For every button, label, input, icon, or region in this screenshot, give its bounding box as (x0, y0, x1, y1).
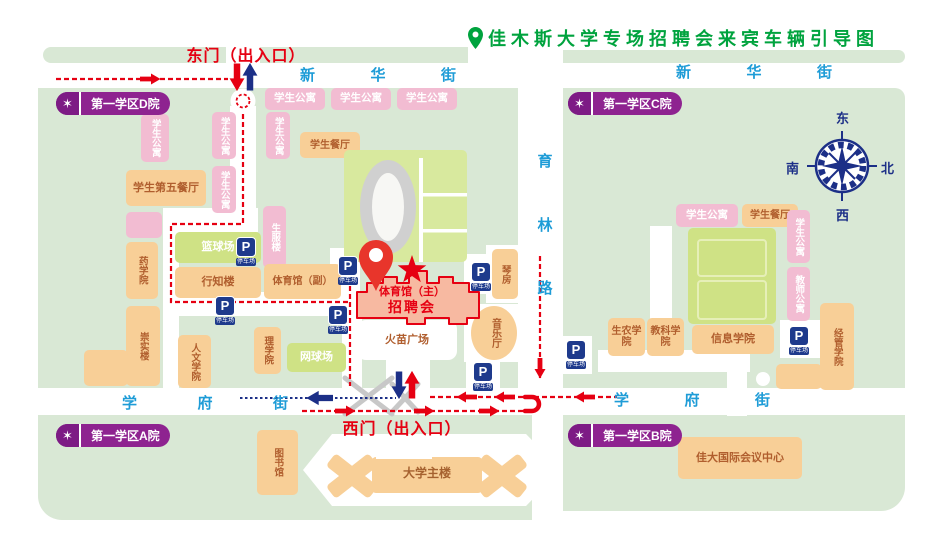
building-apt-w4: 学生公寓 (141, 114, 169, 162)
building-science-college: 理学院 (254, 327, 281, 374)
badge-district-d: ✶第一学区D院 (56, 92, 170, 115)
building-apt-e2: 学生公寓 (787, 210, 810, 263)
parking-icon: P停车场 (789, 326, 809, 355)
parking-caption: 停车场 (566, 361, 586, 369)
building-chongshi-bldg: 崇实楼 (126, 306, 160, 386)
parking-symbol: P (789, 326, 809, 346)
star-icon: ✶ (568, 424, 593, 447)
building-apt-w2: 学生公寓 (331, 88, 391, 110)
parking-symbol: P (236, 237, 256, 257)
building-shengfu-bldg: 生服楼 (263, 206, 286, 268)
parking-caption: 停车场 (215, 317, 235, 325)
building-apt-w5: 学生公寓 (212, 112, 236, 159)
street-char: 新 (676, 61, 691, 82)
badge-label: 第一学区B院 (593, 424, 682, 447)
building-apt-w7: 学生公寓 (266, 112, 290, 159)
badge-district-a: ✶第一学区A院 (56, 424, 170, 447)
parking-icon: P停车场 (473, 362, 493, 391)
parking-caption: 停车场 (328, 326, 348, 334)
street-char: 新 (300, 64, 315, 85)
building-gym-aux: 体育馆（副） (264, 264, 341, 299)
parking-icon: P停车场 (338, 256, 358, 285)
building-piano-rooms: 琴房 (492, 249, 518, 299)
building-apt-w3: 学生公寓 (397, 88, 457, 110)
parking-symbol: P (473, 362, 493, 382)
street-xuefu-east: 学府街 (614, 389, 770, 410)
campus-guidance-map: 学生公寓学生公寓学生公寓学生公寓学生公寓学生公寓学生公寓学生餐厅学生第五餐厅药学… (0, 0, 941, 533)
street-char: 育 (537, 150, 552, 171)
title-text: 佳木斯大学专场招聘会来宾车辆引导图 (488, 25, 879, 51)
building-xingzhi-bldg: 行知楼 (175, 267, 261, 298)
east-gate-label: 东门（出入口） (171, 42, 321, 66)
venue-event: 招聘会 (358, 297, 466, 317)
building-info-college: 信息学院 (692, 325, 774, 354)
building-tennis-court: 网球场 (287, 343, 346, 372)
street-char: 街 (273, 392, 288, 413)
building-shengnong-college: 生农学院 (608, 318, 645, 356)
street-char: 街 (817, 61, 832, 82)
parking-icon: P停车场 (566, 340, 586, 369)
street-char: 华 (370, 64, 385, 85)
building-pharmacy-college: 药学院 (126, 242, 158, 299)
badge-district-b: ✶第一学区B院 (568, 424, 682, 447)
parking-symbol: P (471, 262, 491, 282)
building-apt-w6: 学生公寓 (212, 166, 236, 213)
street-char: 学 (614, 389, 629, 410)
parking-icon: P停车场 (215, 296, 235, 325)
badge-label: 第一学区C院 (593, 92, 682, 115)
page-title: 佳木斯大学专场招聘会来宾车辆引导图 (468, 25, 879, 51)
street-char: 府 (684, 389, 699, 410)
building-apt-e1: 学生公寓 (676, 204, 738, 227)
star-icon: ✶ (56, 92, 81, 115)
street-char: 学 (122, 392, 137, 413)
building-chongshi-foot (84, 350, 128, 386)
building-stadium-field (344, 150, 467, 262)
street-xuefu-west: 学府街 (122, 392, 288, 413)
compass-west-label: 西 (836, 205, 849, 224)
building-main-bldg-label: 大学主楼 (372, 462, 482, 486)
building-canteen-no5: 学生第五餐厅 (126, 170, 206, 206)
building-jingguan-college: 经管学院 (820, 303, 854, 390)
building-conference-center: 佳大国际会议中心 (678, 437, 802, 479)
street-char: 街 (441, 64, 456, 85)
west-gate-label: 西门（出入口） (327, 415, 477, 439)
street-char: 华 (746, 61, 761, 82)
compass-north-label: 北 (881, 158, 894, 177)
badge-district-c: ✶第一学区C院 (568, 92, 682, 115)
building-jiaoke-college: 教科学院 (647, 318, 684, 356)
badge-label: 第一学区A院 (81, 424, 170, 447)
compass-south-label: 南 (786, 158, 799, 177)
building-library: 图书馆 (257, 430, 298, 495)
street-char: 路 (537, 277, 552, 298)
building-annex (126, 212, 162, 238)
u-turn-icon (525, 397, 539, 411)
building-humanities-college: 人文学院 (178, 335, 211, 388)
building-flame-plaza: 火苗广场 (357, 320, 457, 360)
badge-label: 第一学区D院 (81, 92, 170, 115)
title-pin-icon (468, 27, 483, 49)
compass-east-label: 东 (836, 108, 849, 127)
parking-caption: 停车场 (236, 258, 256, 266)
building-music-hall-label: 音乐厅 (484, 309, 505, 357)
star-icon: ✶ (568, 92, 593, 115)
building-stadium-label: 体育场 (377, 172, 398, 248)
street-char: 林 (537, 214, 552, 235)
parking-icon: P停车场 (328, 305, 348, 334)
street-char: 街 (755, 389, 770, 410)
street-xinhua-east: 新华街 (676, 61, 832, 82)
building-teacher-apt: 教师公寓 (787, 267, 810, 321)
street-yulin: 育林路 (535, 150, 555, 298)
parking-icon: P停车场 (471, 262, 491, 291)
parking-icon: P停车场 (236, 237, 256, 266)
star-icon: ✶ (56, 424, 81, 447)
parking-symbol: P (566, 340, 586, 360)
parking-caption: 停车场 (789, 347, 809, 355)
parking-symbol: P (328, 305, 348, 325)
parking-symbol: P (215, 296, 235, 316)
building-apt-w1: 学生公寓 (265, 88, 325, 110)
parking-caption: 停车场 (471, 283, 491, 291)
building-jingguan-foot (776, 364, 822, 389)
building-courts-east (688, 228, 776, 324)
parking-caption: 停车场 (338, 277, 358, 285)
parking-symbol: P (338, 256, 358, 276)
street-char: 府 (197, 392, 212, 413)
street-xinhua-west: 新华街 (300, 64, 456, 85)
parking-caption: 停车场 (473, 383, 493, 391)
